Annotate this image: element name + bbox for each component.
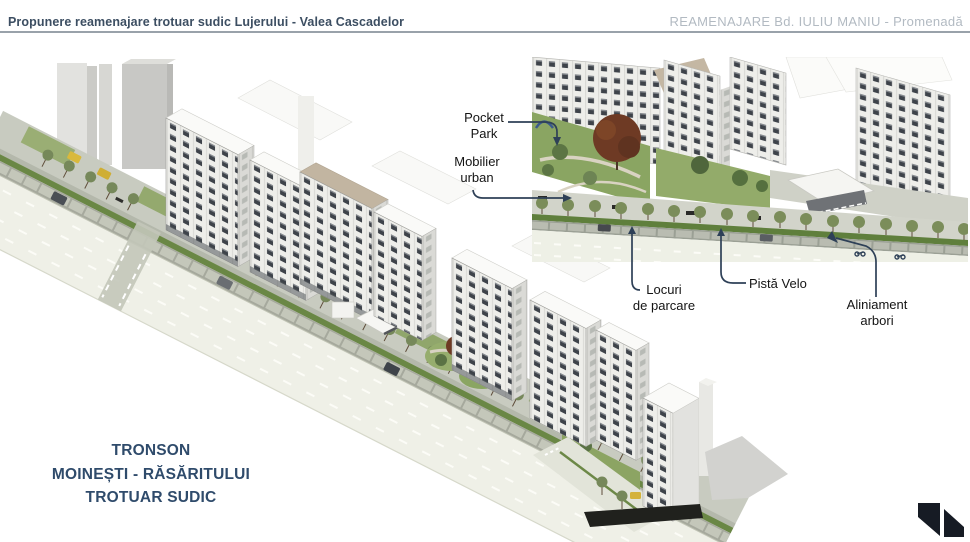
- logo-mark: [918, 503, 964, 537]
- tronson-caption: TRONSON MOINEȘTI - RĂSĂRITULUI TROTUAR S…: [40, 439, 262, 510]
- inset-detail-illustration: [532, 57, 970, 280]
- label-pocket-park-line1: Pocket: [464, 110, 504, 126]
- label-pista-velo-text: Pistă Velo: [749, 276, 807, 292]
- caption-line1: TRONSON: [40, 439, 262, 463]
- label-locuri-line1: Locuri: [633, 282, 695, 298]
- label-locuri-de-parcare: Locuri de parcare: [633, 282, 695, 313]
- label-aliniament-arbori: Aliniament arbori: [847, 297, 908, 328]
- label-mobilier-urban: Mobilier urban: [454, 154, 500, 185]
- presentation-slide: { "header": { "title_left": "Propunere r…: [0, 0, 970, 542]
- label-pocket-park: Pocket Park: [464, 110, 504, 141]
- label-pista-velo: Pistă Velo: [749, 276, 807, 292]
- label-aliniament-line1: Aliniament: [847, 297, 908, 313]
- label-aliniament-line2: arbori: [847, 313, 908, 329]
- caption-line2: MOINEȘTI - RĂSĂRITULUI: [40, 463, 262, 487]
- header-divider: [0, 31, 970, 33]
- label-locuri-line2: de parcare: [633, 298, 695, 314]
- slide-title-left: Propunere reamenajare trotuar sudic Luje…: [8, 15, 404, 29]
- caption-line3: TROTUAR SUDIC: [40, 486, 262, 510]
- label-mobilier-line2: urban: [454, 170, 500, 186]
- label-pocket-park-line2: Park: [464, 126, 504, 142]
- slide-title-right: REAMENAJARE Bd. IULIU MANIU - Promenadă: [670, 14, 963, 29]
- label-mobilier-line1: Mobilier: [454, 154, 500, 170]
